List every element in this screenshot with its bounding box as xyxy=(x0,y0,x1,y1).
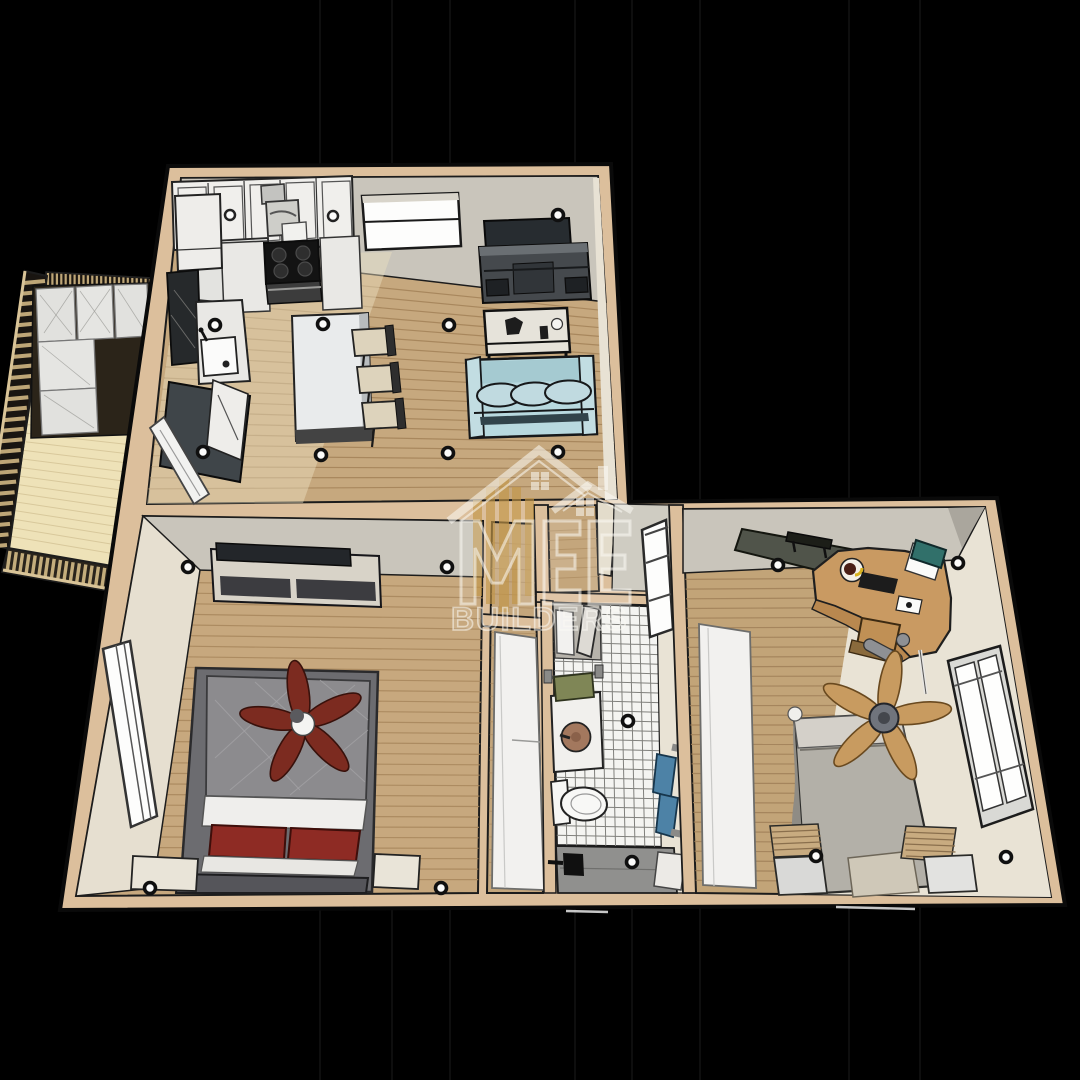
svg-text:BUILDERS: BUILDERS xyxy=(451,601,631,637)
